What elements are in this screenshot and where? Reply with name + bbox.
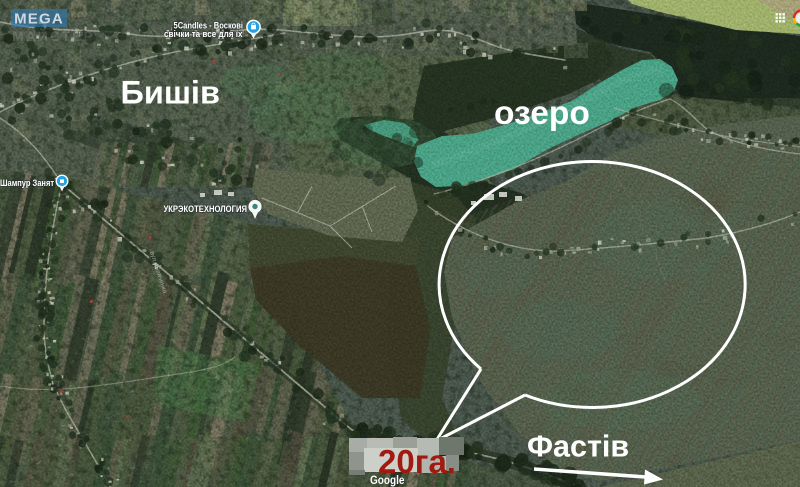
svg-text:озеро: озеро — [494, 95, 590, 132]
svg-text:свічки та все для їх: свічки та все для їх — [164, 29, 243, 40]
svg-text:МАЙСТЕР: МАЙСТЕР — [12, 27, 95, 44]
svg-text:Бишів: Бишів — [121, 75, 220, 111]
svg-text:УКРЭКОТЕХНОЛОГИЯ: УКРЭКОТЕХНОЛОГИЯ — [164, 204, 248, 214]
svg-text:Шампур Занят: Шампур Занят — [0, 178, 54, 189]
svg-text:MEGA: MEGA — [14, 11, 64, 28]
svg-text:Фастів: Фастів — [527, 430, 629, 464]
svg-text:Google: Google — [370, 473, 405, 487]
